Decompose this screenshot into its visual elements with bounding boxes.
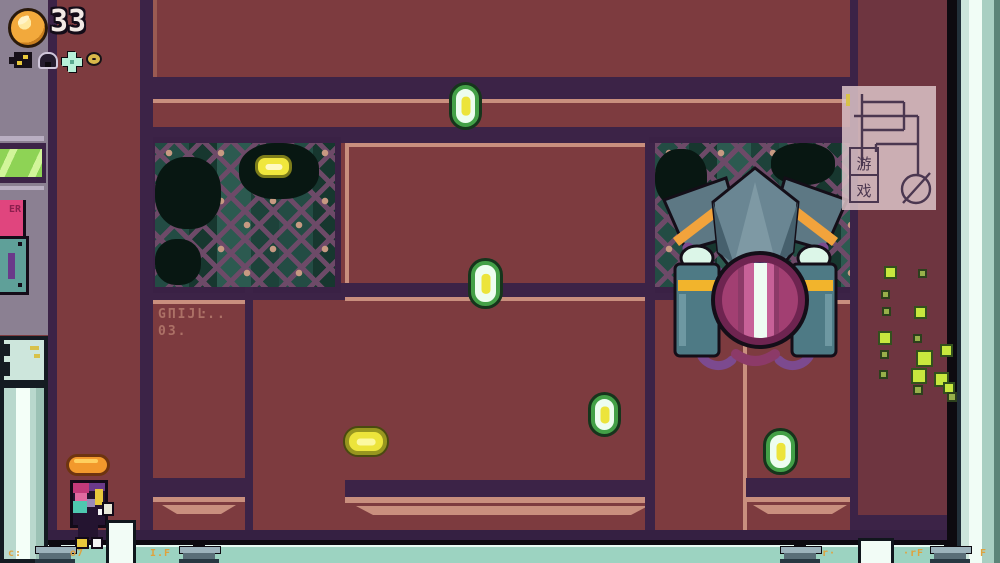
player-foot-right	[91, 537, 103, 549]
green-particle	[881, 290, 890, 299]
watermark: 游 戏	[842, 86, 936, 210]
pink-sign-text: ER	[9, 204, 21, 215]
body-pixel	[73, 501, 87, 513]
panel-trim	[153, 300, 245, 304]
green-particle	[879, 370, 888, 379]
coin-core	[481, 273, 490, 293]
floor-glyph: c:	[8, 548, 22, 559]
floor-pedestal	[35, 540, 75, 563]
tank-highlight	[825, 294, 832, 346]
flower-center	[70, 60, 74, 64]
icon-pixel	[23, 55, 28, 59]
watermark-tick	[846, 94, 850, 106]
floor-glyph: ·rF	[903, 548, 924, 559]
right-pillar-shadow-line	[947, 0, 957, 563]
floor-glyph: o7	[70, 548, 84, 559]
player-hat-capsule	[66, 454, 110, 476]
pillar-shade	[36, 388, 44, 559]
wall-trim-light	[0, 136, 44, 141]
floor-post	[106, 520, 136, 563]
wall-edge-highlight	[153, 0, 157, 77]
sign-rivet	[18, 242, 22, 246]
skirting-trim	[746, 497, 850, 502]
green-particle	[913, 334, 922, 343]
pedestal-base	[35, 559, 75, 563]
floor-pedestal	[179, 540, 219, 563]
panel-groove-low	[746, 478, 850, 497]
wall-stencil-line2: 03.	[158, 323, 227, 340]
panel-left-trim	[345, 143, 349, 283]
panel-groove-low	[345, 480, 645, 497]
coin-core	[461, 97, 470, 116]
ceiling-shadow-band	[153, 77, 858, 99]
skirting-arch	[356, 506, 648, 515]
game-viewport: GΠIJĿ.. 03.	[0, 0, 1000, 563]
coin-capsule-vertical[interactable]	[591, 395, 618, 434]
helmet-icon	[38, 52, 58, 69]
right-pillar	[957, 0, 1000, 563]
coin-core	[600, 406, 609, 423]
pedestal-base	[930, 559, 970, 563]
floor-post	[858, 538, 894, 563]
panel-groove-low	[153, 478, 245, 497]
wall-separator	[245, 287, 253, 540]
tank-band	[678, 280, 716, 291]
green-particle	[916, 350, 933, 367]
boss-sprite[interactable]	[648, 142, 863, 372]
ring-icon	[86, 52, 102, 66]
coin-capsule-vertical[interactable]	[471, 261, 500, 306]
watermark-char1: 游	[856, 155, 871, 173]
green-particle	[913, 385, 923, 395]
icon-pixel	[9, 57, 14, 64]
hud-coin-icon	[8, 8, 48, 48]
coin-shine	[16, 14, 30, 26]
beam-highlight-line	[153, 99, 858, 103]
player-character[interactable]	[64, 452, 112, 552]
teal-sign	[0, 236, 29, 295]
floor-glyph: I.F	[150, 548, 171, 559]
skirting-trim	[345, 497, 645, 503]
body-pixel	[73, 483, 89, 493]
wall-stencil-text: GΠIJĿ.. 03.	[158, 306, 227, 340]
body-pixel	[75, 493, 87, 501]
icon-pixel	[17, 61, 22, 65]
skirting-arch	[162, 505, 236, 514]
panel-top-trim	[345, 143, 650, 147]
green-particle	[880, 350, 889, 359]
pink-sign: ER	[0, 200, 26, 239]
floor-pedestal	[780, 540, 820, 563]
green-particle	[911, 368, 927, 384]
body-pixel	[87, 499, 95, 507]
watermark-char2: 戏	[856, 182, 871, 200]
coin-capsule-pill[interactable]	[345, 428, 387, 455]
sign-rivet	[18, 283, 22, 287]
helmet-notch	[45, 62, 51, 67]
floor-glyph: F	[980, 548, 987, 559]
tank-highlight	[679, 294, 686, 346]
coin-capsule-vertical[interactable]	[766, 431, 795, 472]
sign-glyph	[8, 253, 15, 279]
window-shadow-blob	[155, 239, 201, 285]
hud-coin-count: 33	[50, 4, 86, 39]
hat-shine	[74, 459, 98, 463]
pillar-glyph	[34, 354, 40, 358]
skirting-arch	[753, 505, 847, 514]
left-pillar-shaft	[0, 384, 48, 563]
window-shadow-blob	[155, 157, 221, 229]
coin-core	[776, 442, 785, 460]
boss-bottom-pipe	[736, 354, 775, 361]
green-particle	[918, 269, 927, 278]
player-arm	[102, 502, 114, 516]
green-particle	[914, 306, 927, 319]
wall-trim-light	[0, 186, 44, 190]
coin-core	[265, 164, 282, 170]
wall-stencil-line1: GΠIJĿ..	[158, 306, 227, 323]
green-particle	[947, 392, 957, 402]
pillar-glyph	[30, 346, 39, 350]
wall-separator	[48, 0, 57, 540]
green-particle	[882, 307, 891, 316]
green-particle	[940, 344, 953, 357]
coin-core	[357, 438, 376, 445]
coin-capsule-vertical[interactable]	[452, 85, 479, 127]
pillar-notch	[0, 362, 10, 376]
wall-base-band	[0, 530, 947, 540]
quilted-window-left	[149, 137, 341, 293]
wall-separator	[140, 0, 153, 540]
right-wall-column	[858, 0, 947, 540]
blaster-icon	[14, 52, 32, 68]
pillar-notch	[0, 344, 10, 356]
flower-icon	[62, 52, 82, 72]
green-light-bar	[0, 149, 42, 177]
floor-glyph: r·	[822, 548, 836, 559]
sphere-stripes	[738, 252, 779, 348]
coin-capsule-window[interactable]	[255, 155, 292, 178]
pedestal-base	[179, 559, 219, 563]
skirting-trim	[153, 497, 245, 502]
pedestal-base	[780, 559, 820, 563]
pillar-stripe	[16, 388, 30, 559]
green-particle	[884, 266, 897, 279]
green-particle	[878, 331, 892, 345]
floor-pedestal	[930, 540, 970, 563]
